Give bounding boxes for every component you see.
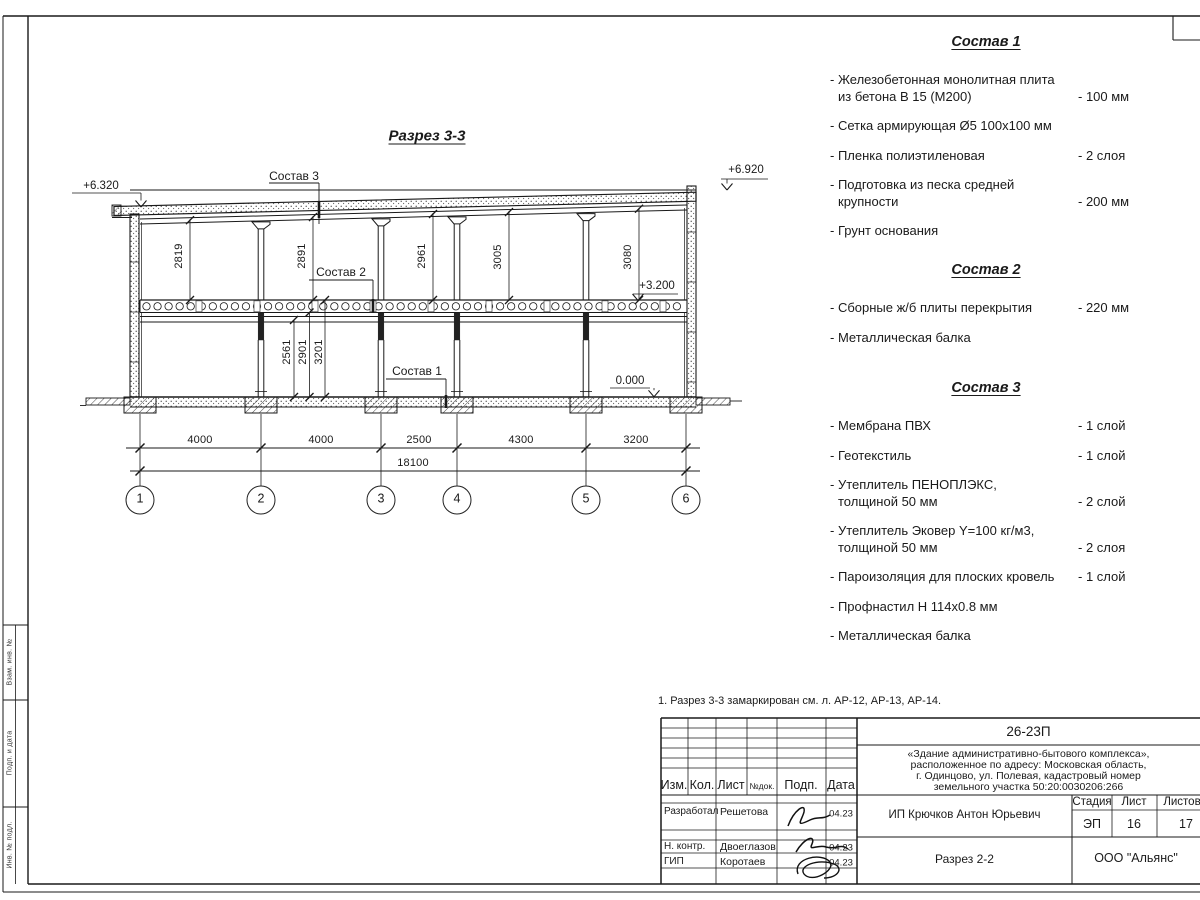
spec-item: - Грунт основания [830,223,1142,240]
sheets-value: 17 [1179,817,1193,831]
elevation-roof-right: +6.920 [728,164,764,176]
elevation-roof-left: +6.320 [83,180,119,192]
person-name-2: Двоеглазов [720,841,776,853]
drawing-name: Разрез 2-2 [857,852,1072,866]
dim-lower-2: 2901 [297,339,309,364]
dim-height-3: 2961 [416,243,428,268]
dim-lower-3: 3201 [313,339,325,364]
person-role-1: Разработал [664,806,718,817]
dim-span-1: 4000 [187,434,212,446]
spec-item: - Утеплитель ПЕНОПЛЭКС,толщиной 50 мм- 2… [830,477,1142,510]
person-date-2: 04.23 [829,843,853,854]
spec-item: - Мембрана ПВХ- 1 слой [830,418,1142,435]
stage-header: Стадия [1072,796,1111,808]
spec-item: - Пленка полиэтиленовая- 2 слоя [830,148,1142,165]
spec-item: - Пароизоляция для плоских кровель- 1 сл… [830,569,1142,586]
elevation-floor: +3.200 [639,280,675,292]
dim-span-4: 4300 [508,434,533,446]
spec-item: - Профнастил Н 114х0.8 мм [830,599,1142,616]
dim-span-3: 2500 [406,434,431,446]
person-date-3: 04.23 [829,858,853,869]
company-name: ООО "Альянс" [1072,851,1200,865]
drawing-sheet: Разрез 3-3 +6.320 +6.920 +3.200 0.000 Со… [0,0,1200,900]
rev-header-kol: Кол. [690,778,715,792]
grid-bubble-2: 2 [247,486,276,515]
rev-header-list: Лист [717,778,744,792]
rev-header-ndok: №док. [750,781,775,791]
grid-bubble-6: 6 [672,486,701,515]
rev-header-izm: Изм. [661,778,688,792]
spec-item: - Утеплитель Эковер Y=100 кг/м3,толщиной… [830,523,1142,556]
frame-stamp-label-1: Взам. инв. № [7,639,14,686]
person-role-2: Н. контр. [664,841,705,852]
spec-item: - Металлическая балка [830,628,1142,645]
grid-bubble-4: 4 [443,486,472,515]
dim-span-2: 4000 [308,434,333,446]
spec-items-3: - Мембрана ПВХ- 1 слой- Геотекстиль- 1 с… [830,418,1142,645]
stage-value: ЭП [1083,817,1101,831]
grid-bubble-3: 3 [367,486,396,515]
client-name: ИП Крючков Антон Юрьевич [857,809,1072,821]
spec-block-1: Состав 1 - Железобетонная монолитная пли… [830,34,1142,253]
frame-stamp-label-3: Инв. № подл. [7,821,14,868]
elevation-ground: 0.000 [616,375,645,387]
drawing-note: 1. Разрез 3-3 замаркирован см. л. АР-12,… [658,695,941,707]
section-title: Разрез 3-3 [388,128,465,145]
dim-total: 18100 [397,457,429,469]
spec-title-1: Состав 1 [830,34,1142,50]
person-name-3: Коротаев [720,856,765,868]
spec-block-2: Состав 2 - Сборные ж/б плиты перекрытия-… [830,262,1142,359]
project-line-4: земельного участка 50:20:0030206:266 [857,781,1200,793]
person-role-3: ГИП [664,856,684,867]
rev-header-data: Дата [827,778,855,792]
leader-sostav3: Состав 3 [269,169,319,183]
leader-sostav1: Состав 1 [392,364,442,378]
spec-item: - Металлическая балка [830,330,1142,347]
spec-item: - Сетка армирующая Ø5 100х100 мм [830,118,1142,135]
doc-number: 26-23П [857,724,1200,739]
spec-item: - Железобетонная монолитная плитаиз бето… [830,72,1142,105]
grid-bubble-1: 1 [126,486,155,515]
spec-item: - Подготовка из песка среднейкрупности- … [830,177,1142,210]
spec-items-2: - Сборные ж/б плиты перекрытия- 220 мм- … [830,300,1142,346]
dim-height-4: 3005 [492,244,504,269]
dim-height-2: 2891 [296,243,308,268]
grid-bubble-5: 5 [572,486,601,515]
spec-items-1: - Железобетонная монолитная плитаиз бето… [830,72,1142,240]
dim-height-1: 2819 [173,243,185,268]
spec-title-3: Состав 3 [830,380,1142,396]
spec-title-2: Состав 2 [830,262,1142,278]
dim-span-5: 3200 [623,434,648,446]
rev-header-podp: Подп. [784,778,817,792]
person-name-1: Решетова [720,806,768,818]
spec-item: - Геотекстиль- 1 слой [830,448,1142,465]
sheets-header: Листов [1163,796,1200,808]
spec-item: - Сборные ж/б плиты перекрытия- 220 мм [830,300,1142,317]
sheet-value: 16 [1127,817,1141,831]
person-date-1: 04.23 [829,809,853,820]
dim-lower-1: 2561 [281,339,293,364]
sheet-header: Лист [1122,796,1147,808]
frame-stamp-label-2: Подп. и дата [7,731,14,776]
leader-sostav2: Состав 2 [316,265,366,279]
spec-block-3: Состав 3 - Мембрана ПВХ- 1 слой- Геотекс… [830,380,1142,658]
dim-height-5: 3080 [622,244,634,269]
